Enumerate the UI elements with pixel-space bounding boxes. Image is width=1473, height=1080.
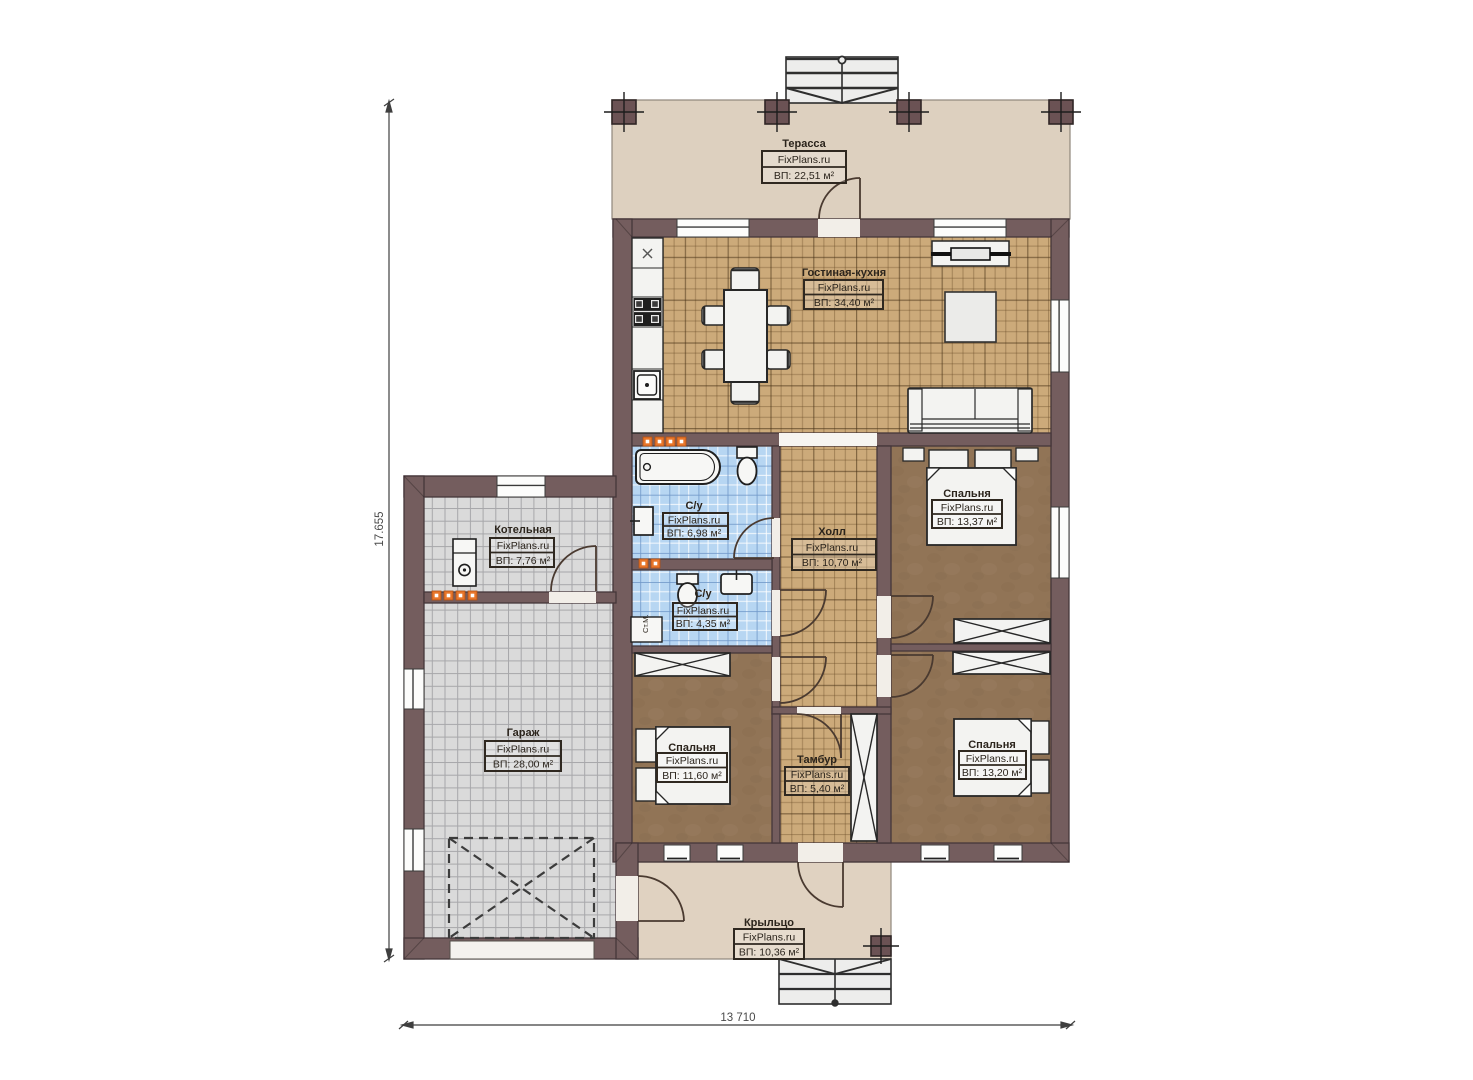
svg-text:Спальня: Спальня	[968, 739, 1016, 751]
svg-text:ВП: 34,40 м²: ВП: 34,40 м²	[814, 297, 875, 309]
svg-text:ВП: 22,51 м²: ВП: 22,51 м²	[774, 170, 835, 182]
svg-text:Спальня: Спальня	[943, 488, 991, 500]
svg-text:Гараж: Гараж	[507, 727, 540, 739]
svg-text:ВП: 13,37 м²: ВП: 13,37 м²	[937, 516, 998, 528]
svg-text:FixPlans.ru: FixPlans.ru	[818, 282, 871, 294]
svg-text:ВП: 11,60 м²: ВП: 11,60 м²	[662, 770, 722, 782]
svg-text:ВП: 5,40 м²: ВП: 5,40 м²	[790, 783, 845, 795]
svg-text:FixPlans.ru: FixPlans.ru	[497, 744, 550, 756]
svg-text:FixPlans.ru: FixPlans.ru	[806, 542, 859, 554]
svg-text:Тамбур: Тамбур	[797, 754, 837, 766]
svg-text:FixPlans.ru: FixPlans.ru	[743, 932, 796, 944]
svg-text:Гостиная-кухня: Гостиная-кухня	[802, 267, 886, 279]
svg-text:FixPlans.ru: FixPlans.ru	[941, 502, 994, 514]
svg-text:Холл: Холл	[818, 526, 846, 538]
svg-text:FixPlans.ru: FixPlans.ru	[791, 769, 844, 781]
svg-text:ВП: 10,36 м²: ВП: 10,36 м²	[739, 947, 800, 959]
svg-text:FixPlans.ru: FixPlans.ru	[668, 515, 721, 527]
svg-text:FixPlans.ru: FixPlans.ru	[966, 753, 1019, 765]
svg-text:FixPlans.ru: FixPlans.ru	[778, 154, 831, 166]
svg-text:ВП: 7,76 м²: ВП: 7,76 м²	[496, 555, 551, 567]
svg-text:ВП: 10,70 м²: ВП: 10,70 м²	[802, 557, 863, 569]
svg-text:13 710: 13 710	[720, 1012, 755, 1024]
svg-text:Ст.М.: Ст.М.	[641, 615, 650, 633]
svg-text:Терасса: Терасса	[782, 138, 826, 150]
svg-text:Котельная: Котельная	[494, 524, 552, 536]
svg-text:17.655: 17.655	[374, 511, 386, 546]
svg-text:Крыльцо: Крыльцо	[744, 917, 794, 929]
svg-text:С/у: С/у	[694, 588, 712, 600]
svg-text:FixPlans.ru: FixPlans.ru	[666, 755, 719, 767]
svg-text:ВП: 28,00 м²: ВП: 28,00 м²	[493, 759, 554, 771]
svg-text:ВП: 4,35 м²: ВП: 4,35 м²	[676, 618, 731, 630]
svg-text:С/у: С/у	[685, 500, 703, 512]
svg-text:FixPlans.ru: FixPlans.ru	[497, 540, 550, 552]
svg-text:FixPlans.ru: FixPlans.ru	[677, 605, 730, 617]
svg-text:ВП: 13,20 м²: ВП: 13,20 м²	[962, 767, 1023, 779]
svg-text:ВП: 6,98 м²: ВП: 6,98 м²	[667, 528, 722, 540]
